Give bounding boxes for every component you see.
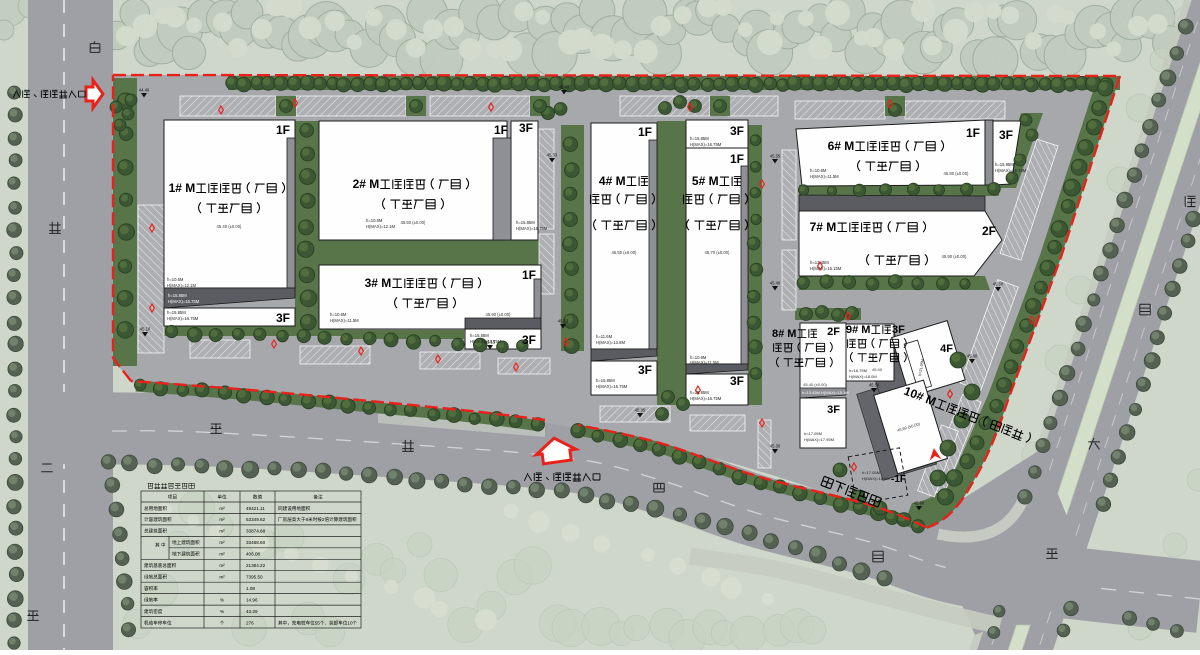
svg-text:3F: 3F	[730, 374, 744, 388]
svg-text:H(MAX)=16.75M: H(MAX)=16.75M	[167, 316, 199, 321]
svg-text:h=17.05M: h=17.05M	[862, 470, 880, 475]
svg-text:-1F: -1F	[891, 474, 906, 485]
svg-text:45.80 (±0.00): 45.80 (±0.00)	[944, 171, 969, 176]
svg-text:m²: m²	[219, 517, 225, 522]
svg-text:单位: 单位	[217, 494, 227, 501]
svg-text:1F: 1F	[522, 268, 536, 282]
svg-text:1F: 1F	[730, 152, 744, 166]
svg-text:14.96: 14.96	[246, 597, 258, 602]
svg-text:33468.60: 33468.60	[246, 540, 266, 545]
svg-text:45.43: 45.43	[559, 85, 570, 90]
svg-text:绿地率: 绿地率	[144, 596, 158, 603]
svg-text:45.90 (±0.00): 45.90 (±0.00)	[942, 254, 967, 259]
svg-text:45.70 (±0.00): 45.70 (±0.00)	[705, 250, 730, 255]
svg-text:h=15.85M: h=15.85M	[168, 293, 187, 298]
svg-text:m²: m²	[219, 506, 225, 511]
svg-text:45.50 (±0.00): 45.50 (±0.00)	[612, 250, 637, 255]
svg-text:%: %	[220, 597, 224, 602]
svg-text:43.29: 43.29	[246, 609, 258, 614]
svg-text:H(MAX)=12.1M: H(MAX)=12.1M	[366, 224, 395, 229]
svg-text:H(MAX)=18.0M: H(MAX)=18.0M	[849, 374, 877, 379]
svg-text:H(MAX)=11.5M: H(MAX)=11.5M	[330, 318, 359, 323]
svg-text:53349.62: 53349.62	[246, 517, 266, 522]
svg-text:m²: m²	[219, 552, 225, 557]
svg-text:9# M: 9# M	[846, 324, 870, 336]
svg-text:45.50: 45.50	[993, 282, 1004, 287]
svg-text:h=17.05M: h=17.05M	[804, 431, 822, 436]
svg-text:h=15.85M: h=15.85M	[596, 378, 615, 383]
svg-text:地上建筑面积: 地上建筑面积	[172, 539, 200, 546]
svg-text:个: 个	[220, 620, 225, 625]
svg-text:h=15.85M: h=15.85M	[690, 390, 709, 395]
svg-text:h=15.85M: h=15.85M	[470, 333, 489, 338]
svg-text:45.30: 45.30	[770, 444, 781, 449]
svg-text:4# M: 4# M	[599, 174, 626, 188]
svg-text:1F: 1F	[494, 123, 508, 137]
svg-text:H(MAX)=11.5M: H(MAX)=11.5M	[690, 360, 719, 365]
svg-text:h=15.85M: h=15.85M	[690, 136, 709, 141]
svg-text:2F: 2F	[827, 326, 840, 338]
svg-text:45.05: 45.05	[635, 408, 646, 413]
svg-text:49421.11: 49421.11	[246, 506, 265, 511]
svg-text:H(MAX)=11.5M: H(MAX)=11.5M	[810, 174, 839, 179]
svg-text:h=16.75M: h=16.75M	[849, 368, 867, 373]
svg-text:45.50: 45.50	[869, 383, 880, 388]
svg-text:406.08: 406.08	[246, 552, 260, 557]
svg-text:45.13: 45.13	[558, 319, 569, 324]
svg-text:m²: m²	[219, 563, 225, 568]
svg-text:45.40: 45.40	[872, 367, 883, 372]
svg-text:h=11.6M: h=11.6M	[596, 334, 613, 339]
svg-text:H(MAX)=16.75M: H(MAX)=16.75M	[470, 339, 502, 344]
svg-text:21384.22: 21384.22	[246, 563, 266, 568]
svg-text:绿地总面积: 绿地总面积	[144, 574, 167, 581]
svg-text:H(MAX)=16.75M: H(MAX)=16.75M	[690, 142, 722, 147]
svg-text:45.60: 45.60	[914, 501, 925, 506]
svg-text:h=13.45M: h=13.45M	[810, 260, 829, 265]
svg-text:H(MAX)=17.95M: H(MAX)=17.95M	[804, 437, 834, 442]
svg-text:5# M: 5# M	[692, 174, 719, 188]
svg-text:建筑基底总面积: 建筑基底总面积	[144, 562, 177, 569]
svg-text:3F: 3F	[892, 324, 905, 336]
svg-text:H(MAX)=16.75M: H(MAX)=16.75M	[168, 299, 200, 304]
svg-text:45.33: 45.33	[547, 153, 558, 158]
svg-text:H(MAX)=13.6M: H(MAX)=13.6M	[596, 340, 625, 345]
svg-text:机动车停车位: 机动车停车位	[144, 619, 172, 626]
svg-text:1# M: 1# M	[169, 181, 196, 195]
svg-text:H(MAX)=16.75M: H(MAX)=16.75M	[690, 396, 722, 401]
svg-text:1F: 1F	[638, 125, 652, 139]
svg-text:厂房层高大于8米时按2倍计算建筑面积: 厂房层高大于8米时按2倍计算建筑面积	[278, 516, 357, 523]
svg-text:总建筑面积: 总建筑面积	[144, 528, 167, 535]
svg-text:h=10.6M: h=10.6M	[810, 168, 827, 173]
svg-text:44.40: 44.40	[139, 88, 150, 93]
svg-text:H(MAX)=18.6M: H(MAX)=18.6M	[862, 476, 890, 481]
svg-text:45.10: 45.10	[140, 327, 151, 332]
svg-text:6# M: 6# M	[828, 139, 855, 153]
svg-text:7395.50: 7395.50	[246, 575, 263, 580]
svg-text:H(MAX)=12.1M: H(MAX)=12.1M	[167, 283, 196, 288]
svg-text:1F: 1F	[966, 126, 980, 140]
svg-text:H(MAX)=15.15M: H(MAX)=15.15M	[810, 266, 842, 271]
svg-text:H(MAX)=16.75M: H(MAX)=16.75M	[995, 168, 1027, 173]
svg-text:m²: m²	[219, 540, 225, 545]
svg-text:h=10.6M: h=10.6M	[167, 277, 184, 282]
svg-text:4F: 4F	[940, 343, 953, 355]
svg-text:33874.68: 33874.68	[246, 529, 266, 534]
svg-text:数值: 数值	[253, 494, 263, 501]
svg-text:建筑密度: 建筑密度	[144, 608, 163, 615]
svg-text:45.60: 45.60	[967, 354, 978, 359]
svg-text:45.50 (±0.00): 45.50 (±0.00)	[401, 220, 426, 225]
svg-text:3F: 3F	[730, 124, 744, 138]
svg-text:3F: 3F	[827, 404, 840, 416]
svg-text:同建设用地面积: 同建设用地面积	[278, 505, 311, 512]
svg-text:m²: m²	[219, 529, 225, 534]
svg-text:h=13.45M H(MAX)=15.1M: h=13.45M H(MAX)=15.1M	[802, 390, 849, 395]
svg-text:1F: 1F	[276, 123, 290, 137]
svg-text:H(MAX)=16.75M: H(MAX)=16.75M	[516, 226, 548, 231]
svg-text:容积率: 容积率	[144, 585, 158, 592]
svg-text:2# M: 2# M	[353, 177, 380, 191]
svg-text:3F: 3F	[519, 121, 533, 135]
svg-text:45.40 (±0.00): 45.40 (±0.00)	[217, 224, 242, 229]
svg-text:总用地面积: 总用地面积	[144, 505, 167, 512]
svg-text:3# M: 3# M	[365, 276, 392, 290]
svg-text:h=15.85M: h=15.85M	[995, 162, 1014, 167]
svg-text:2F: 2F	[982, 224, 996, 238]
svg-text:地下建筑面积: 地下建筑面积	[172, 551, 200, 558]
svg-text:h=10.6M: h=10.6M	[366, 218, 383, 223]
svg-text:其中，充电桩车位55个、装卸车位10个: 其中，充电桩车位55个、装卸车位10个	[278, 619, 358, 626]
svg-text:h=15.85M: h=15.85M	[167, 310, 186, 315]
svg-text:备注: 备注	[313, 494, 323, 501]
svg-text:7# M: 7# M	[810, 220, 837, 234]
svg-text:3F: 3F	[638, 363, 652, 377]
svg-text:45.55: 45.55	[770, 154, 781, 159]
svg-text:8# M: 8# M	[772, 328, 796, 340]
svg-text:3F: 3F	[999, 128, 1013, 142]
svg-text:h=10.6M: h=10.6M	[330, 312, 347, 317]
svg-text:H(MAX)=16.75M: H(MAX)=16.75M	[596, 384, 628, 389]
svg-text:m²: m²	[219, 575, 225, 580]
svg-text:3F: 3F	[522, 333, 536, 347]
svg-text:45.40 (±0.00): 45.40 (±0.00)	[803, 382, 827, 387]
svg-text:h=15.85M: h=15.85M	[516, 220, 535, 225]
svg-text:1.08: 1.08	[246, 586, 255, 591]
svg-text:45.40: 45.40	[770, 281, 781, 286]
svg-text:45.90 (±0.00): 45.90 (±0.00)	[486, 312, 511, 317]
svg-text:其 中: 其 中	[155, 541, 166, 548]
svg-text:3F: 3F	[276, 311, 290, 325]
svg-text:%: %	[220, 609, 224, 614]
svg-text:计容建筑面积: 计容建筑面积	[144, 516, 172, 523]
svg-text:276: 276	[246, 620, 254, 625]
